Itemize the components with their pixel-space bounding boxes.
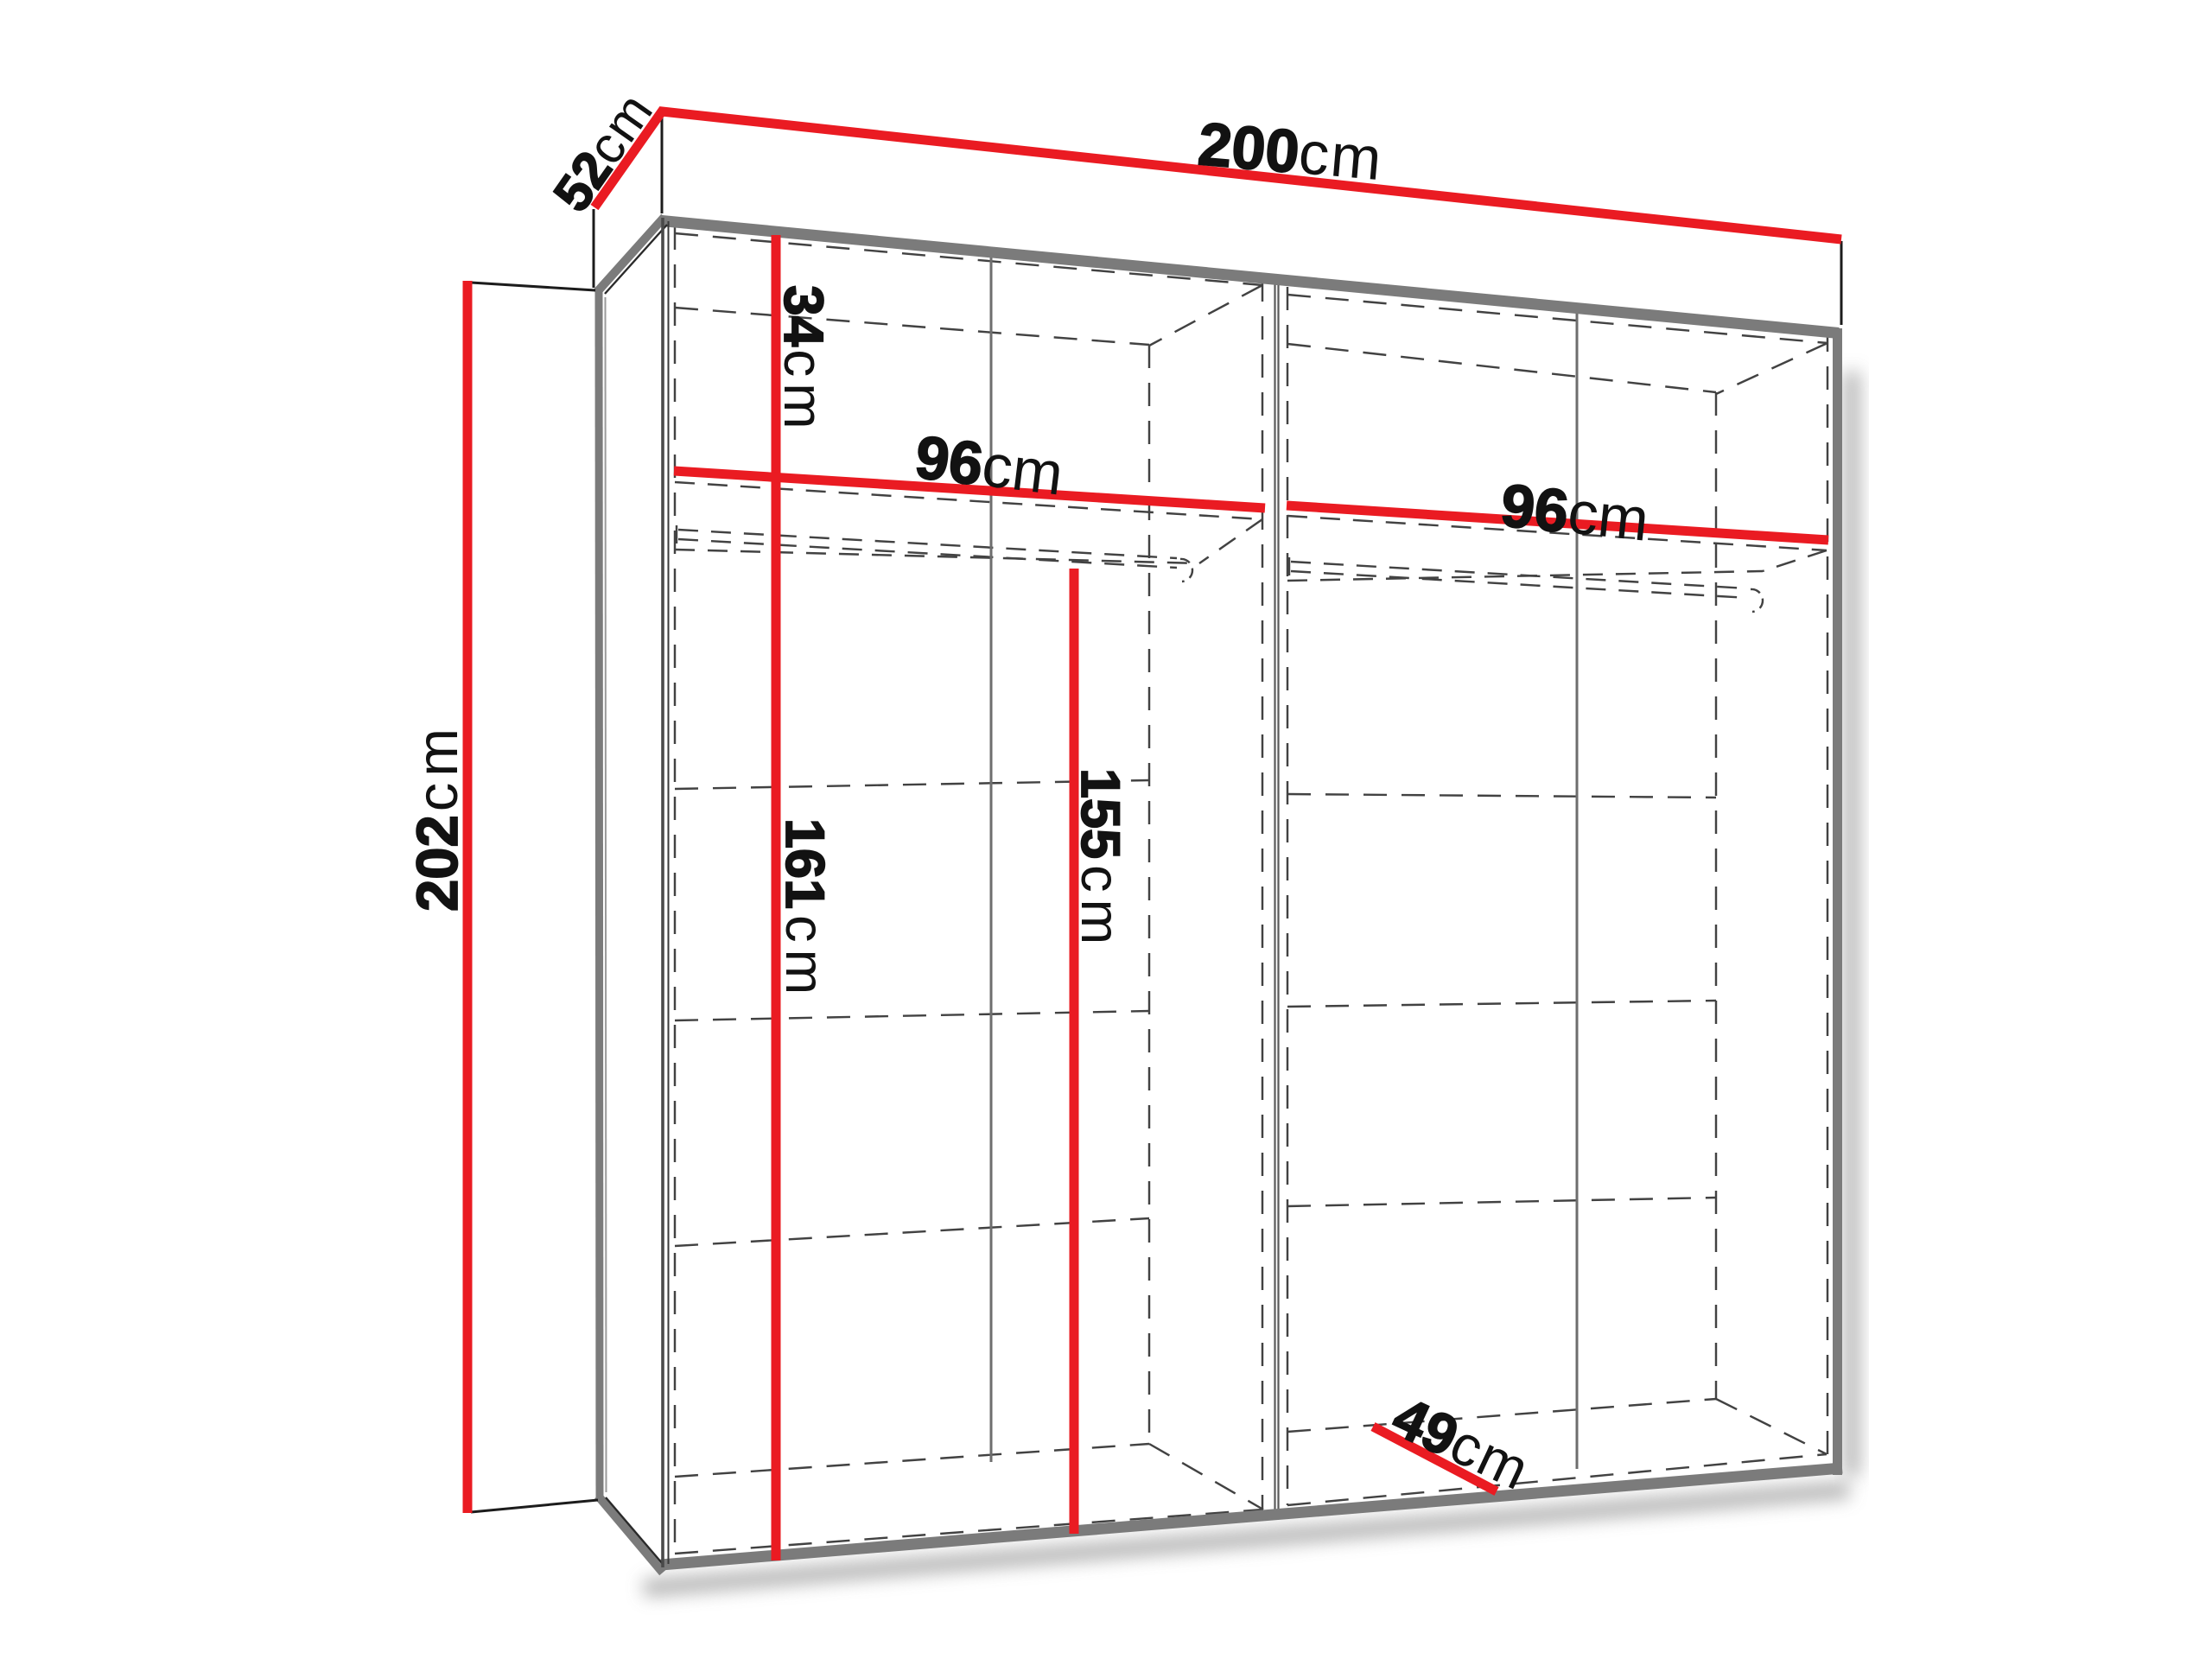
svg-text:202cm: 202cm	[405, 722, 470, 912]
svg-text:34cm: 34cm	[772, 285, 835, 435]
